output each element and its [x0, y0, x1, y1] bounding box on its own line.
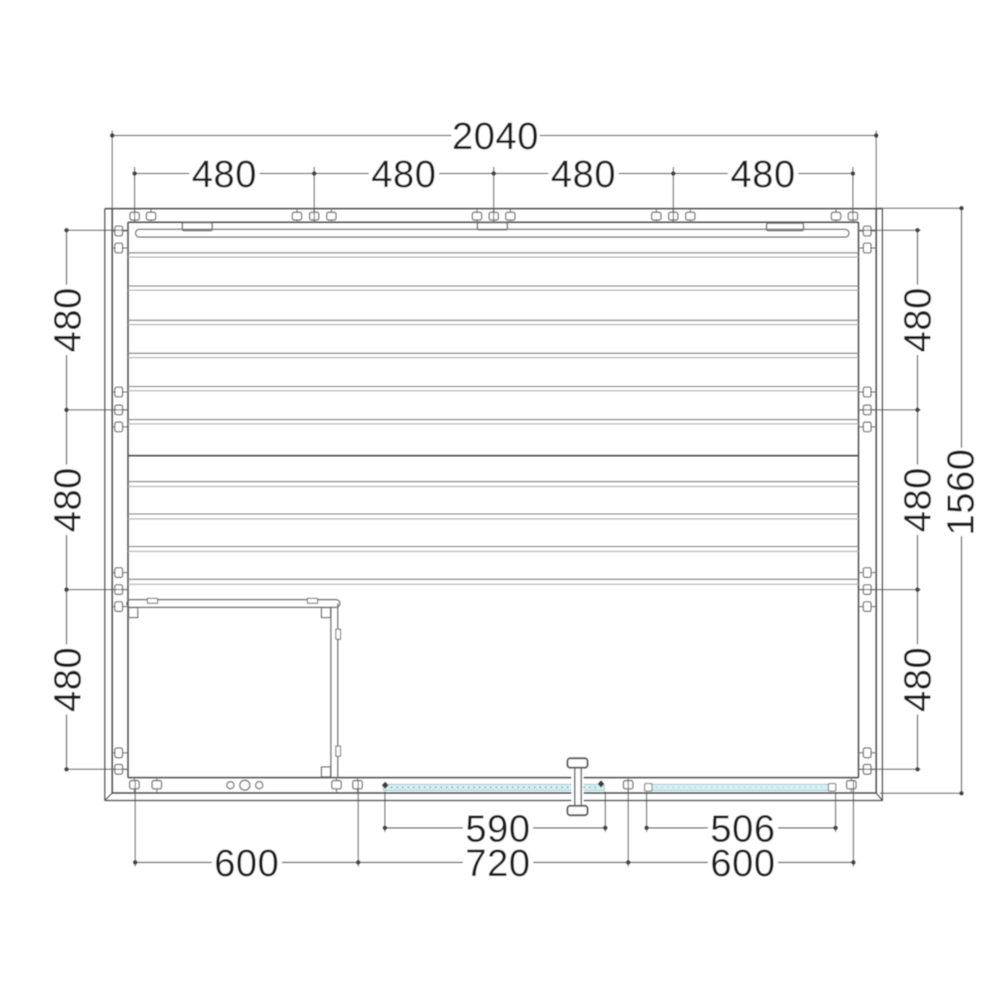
svg-text:480: 480: [897, 467, 939, 532]
svg-text:480: 480: [371, 154, 436, 196]
svg-text:480: 480: [47, 467, 89, 532]
svg-text:480: 480: [551, 154, 616, 196]
svg-text:480: 480: [730, 154, 795, 196]
svg-text:480: 480: [897, 647, 939, 712]
svg-text:720: 720: [465, 843, 530, 885]
svg-text:1560: 1560: [940, 449, 982, 536]
svg-text:480: 480: [47, 287, 89, 352]
svg-text:600: 600: [710, 843, 775, 885]
svg-text:600: 600: [214, 843, 279, 885]
svg-text:480: 480: [192, 154, 257, 196]
svg-text:2040: 2040: [452, 116, 539, 158]
svg-text:480: 480: [47, 647, 89, 712]
svg-text:480: 480: [897, 287, 939, 352]
